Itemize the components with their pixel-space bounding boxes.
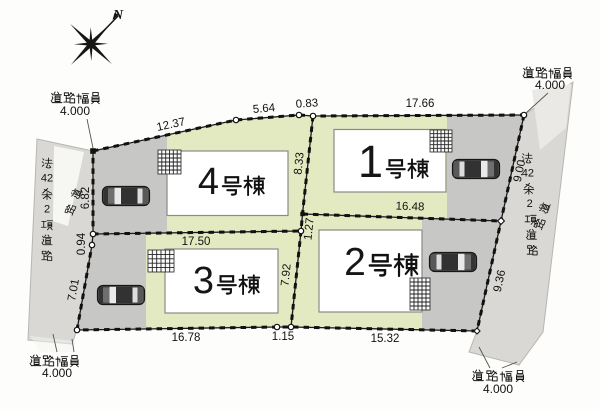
- svg-text:42: 42: [41, 172, 53, 184]
- svg-text:7.92: 7.92: [279, 263, 293, 287]
- svg-text:42: 42: [522, 167, 534, 179]
- svg-text:0.94: 0.94: [76, 232, 88, 255]
- svg-text:17.66: 17.66: [406, 98, 435, 110]
- svg-text:1.27: 1.27: [302, 217, 316, 241]
- svg-text:17.50: 17.50: [182, 236, 211, 248]
- svg-text:5.64: 5.64: [252, 102, 276, 116]
- svg-text:15.32: 15.32: [371, 333, 400, 345]
- svg-text:8.33: 8.33: [292, 152, 306, 176]
- svg-text:2: 2: [44, 203, 50, 215]
- svg-text:1.15: 1.15: [272, 331, 294, 343]
- svg-text:4.000: 4.000: [60, 104, 90, 118]
- svg-text:2: 2: [344, 241, 366, 284]
- svg-text:4: 4: [198, 161, 219, 203]
- svg-text:4.000: 4.000: [483, 382, 513, 396]
- svg-text:16.48: 16.48: [395, 201, 424, 214]
- svg-text:4.000: 4.000: [42, 366, 72, 380]
- svg-text:1: 1: [358, 136, 383, 187]
- svg-text:2: 2: [527, 198, 533, 210]
- svg-text:3: 3: [193, 260, 214, 302]
- svg-text:16.78: 16.78: [172, 332, 201, 344]
- svg-text:0.83: 0.83: [295, 97, 318, 111]
- svg-text:4.000: 4.000: [535, 78, 565, 92]
- svg-text:N: N: [112, 8, 124, 23]
